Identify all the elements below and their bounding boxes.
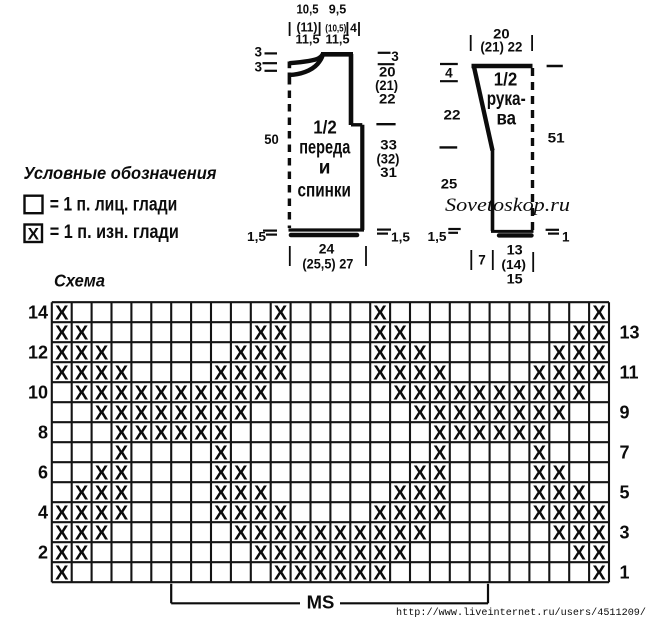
svg-text:X: X — [373, 543, 387, 565]
svg-text:11: 11 — [620, 363, 639, 383]
svg-text:X: X — [234, 363, 248, 385]
svg-text:MS: MS — [307, 592, 335, 613]
svg-text:X: X — [513, 423, 527, 445]
svg-text:X: X — [75, 543, 89, 565]
svg-text:X: X — [254, 503, 268, 525]
svg-text:12: 12 — [28, 343, 48, 363]
svg-text:X: X — [553, 523, 567, 545]
svg-text:(14): (14) — [501, 257, 526, 272]
svg-text:X: X — [393, 343, 407, 365]
svg-text:X: X — [413, 483, 427, 505]
svg-text:51: 51 — [548, 130, 565, 146]
svg-text:X: X — [393, 383, 407, 405]
svg-text:= 1 п. лиц. глади: = 1 п. лиц. глади — [50, 195, 178, 216]
svg-text:X: X — [294, 523, 308, 545]
svg-text:X: X — [155, 403, 169, 425]
svg-text:X: X — [493, 403, 507, 425]
svg-text:1: 1 — [620, 563, 630, 583]
svg-text:3: 3 — [391, 49, 399, 64]
svg-text:2: 2 — [38, 543, 48, 563]
svg-text:10: 10 — [28, 383, 48, 403]
svg-text:4: 4 — [38, 503, 48, 523]
svg-text:X: X — [493, 423, 507, 445]
svg-text:X: X — [572, 343, 586, 365]
svg-text:22: 22 — [444, 107, 461, 123]
svg-text:X: X — [254, 363, 268, 385]
svg-text:X: X — [135, 383, 149, 405]
svg-text:X: X — [194, 423, 208, 445]
svg-text:3: 3 — [254, 45, 262, 60]
svg-text:X: X — [334, 543, 348, 565]
svg-text:X: X — [473, 423, 487, 445]
svg-text:3: 3 — [254, 60, 262, 75]
svg-text:X: X — [294, 543, 308, 565]
svg-text:X: X — [55, 543, 69, 565]
svg-text:X: X — [155, 423, 169, 445]
svg-text:X: X — [572, 523, 586, 545]
svg-text:X: X — [473, 403, 487, 425]
svg-text:X: X — [393, 503, 407, 525]
svg-text:X: X — [314, 523, 328, 545]
svg-text:X: X — [75, 343, 89, 365]
svg-text:X: X — [274, 563, 288, 585]
svg-text:X: X — [553, 343, 567, 365]
svg-text:X: X — [433, 423, 447, 445]
svg-text:X: X — [254, 543, 268, 565]
svg-text:X: X — [533, 483, 547, 505]
svg-text:9,5: 9,5 — [329, 3, 347, 17]
svg-text:X: X — [55, 503, 69, 525]
svg-text:X: X — [214, 483, 228, 505]
svg-text:X: X — [453, 383, 467, 405]
svg-text:X: X — [274, 543, 288, 565]
svg-text:X: X — [214, 443, 228, 465]
svg-text:X: X — [413, 363, 427, 385]
svg-text:= 1 п. изн. глади: = 1 п. изн. глади — [50, 222, 179, 243]
svg-text:X: X — [373, 523, 387, 545]
svg-text:X: X — [572, 363, 586, 385]
svg-text:(25,5) 27: (25,5) 27 — [302, 257, 353, 272]
svg-text:X: X — [55, 363, 69, 385]
svg-text:X: X — [75, 323, 89, 345]
svg-text:X: X — [75, 523, 89, 545]
svg-text:X: X — [294, 563, 308, 585]
svg-text:X: X — [95, 403, 109, 425]
svg-text:X: X — [373, 363, 387, 385]
svg-text:X: X — [75, 503, 89, 525]
svg-text:24: 24 — [319, 242, 335, 257]
svg-text:X: X — [214, 383, 228, 405]
svg-text:X: X — [115, 383, 129, 405]
svg-text:рука-: рука- — [487, 89, 526, 110]
svg-text:1: 1 — [562, 230, 570, 245]
svg-text:X: X — [274, 323, 288, 345]
svg-text:X: X — [234, 463, 248, 485]
svg-text:X: X — [75, 483, 89, 505]
svg-text:14: 14 — [28, 303, 48, 323]
svg-text:X: X — [533, 423, 547, 445]
svg-text:X: X — [354, 563, 368, 585]
svg-text:спинки: спинки — [297, 180, 351, 201]
svg-text:переда: переда — [299, 138, 350, 159]
svg-text:X: X — [592, 303, 606, 325]
svg-text:X: X — [135, 403, 149, 425]
svg-text:X: X — [115, 363, 129, 385]
svg-text:X: X — [592, 563, 606, 585]
svg-text:X: X — [214, 403, 228, 425]
svg-text:13: 13 — [620, 323, 640, 343]
svg-text:X: X — [572, 323, 586, 345]
svg-text:X: X — [553, 403, 567, 425]
svg-text:X: X — [533, 443, 547, 465]
svg-text:X: X — [214, 363, 228, 385]
svg-text:X: X — [95, 363, 109, 385]
svg-text:X: X — [95, 463, 109, 485]
svg-text:X: X — [433, 443, 447, 465]
svg-text:6: 6 — [38, 463, 48, 483]
svg-text:X: X — [592, 363, 606, 385]
svg-text:X: X — [115, 443, 129, 465]
svg-text:4: 4 — [350, 21, 357, 35]
svg-text:X: X — [234, 523, 248, 545]
svg-text:X: X — [135, 423, 149, 445]
svg-text:X: X — [533, 403, 547, 425]
svg-text:X: X — [254, 383, 268, 405]
svg-text:X: X — [254, 323, 268, 345]
svg-text:X: X — [28, 225, 40, 244]
svg-text:3: 3 — [620, 523, 630, 543]
svg-text:X: X — [433, 503, 447, 525]
svg-text:X: X — [55, 323, 69, 345]
svg-text:X: X — [453, 423, 467, 445]
svg-text:11,5: 11,5 — [326, 33, 350, 47]
svg-text:25: 25 — [441, 176, 458, 192]
svg-text:X: X — [155, 383, 169, 405]
svg-text:X: X — [373, 503, 387, 525]
svg-text:X: X — [115, 403, 129, 425]
svg-text:X: X — [433, 383, 447, 405]
svg-text:X: X — [234, 343, 248, 365]
svg-text:X: X — [274, 343, 288, 365]
svg-text:X: X — [95, 343, 109, 365]
svg-text:X: X — [274, 503, 288, 525]
svg-text:22: 22 — [379, 91, 396, 107]
svg-text:X: X — [533, 503, 547, 525]
svg-text:X: X — [174, 383, 188, 405]
svg-text:X: X — [572, 543, 586, 565]
svg-text:X: X — [334, 523, 348, 545]
svg-text:1/2: 1/2 — [313, 118, 337, 138]
svg-text:X: X — [493, 383, 507, 405]
svg-text:X: X — [254, 343, 268, 365]
svg-text:X: X — [194, 383, 208, 405]
svg-text:X: X — [592, 543, 606, 565]
svg-text:X: X — [234, 503, 248, 525]
svg-text:7: 7 — [478, 253, 486, 268]
svg-text:X: X — [214, 463, 228, 485]
svg-text:X: X — [433, 463, 447, 485]
svg-text:X: X — [314, 563, 328, 585]
svg-text:9: 9 — [620, 403, 630, 423]
svg-text:X: X — [55, 563, 69, 585]
svg-text:X: X — [354, 543, 368, 565]
svg-text:X: X — [413, 503, 427, 525]
svg-text:http://www.liveinternet.ru/use: http://www.liveinternet.ru/users/4511209… — [396, 607, 646, 619]
svg-text:X: X — [413, 523, 427, 545]
svg-text:X: X — [433, 363, 447, 385]
svg-text:X: X — [115, 423, 129, 445]
svg-text:X: X — [254, 483, 268, 505]
svg-text:50: 50 — [264, 132, 279, 147]
svg-text:X: X — [592, 523, 606, 545]
svg-text:X: X — [55, 343, 69, 365]
svg-text:X: X — [95, 503, 109, 525]
svg-text:1,5: 1,5 — [428, 229, 447, 244]
svg-text:X: X — [393, 363, 407, 385]
svg-text:X: X — [373, 343, 387, 365]
svg-text:X: X — [393, 323, 407, 345]
svg-text:X: X — [115, 463, 129, 485]
svg-text:X: X — [334, 563, 348, 585]
svg-text:X: X — [592, 503, 606, 525]
svg-text:X: X — [572, 503, 586, 525]
svg-text:X: X — [513, 383, 527, 405]
svg-text:Схема: Схема — [54, 271, 105, 291]
svg-text:X: X — [194, 403, 208, 425]
svg-text:X: X — [373, 323, 387, 345]
svg-text:X: X — [115, 503, 129, 525]
svg-text:X: X — [533, 363, 547, 385]
svg-text:X: X — [95, 383, 109, 405]
svg-text:5: 5 — [620, 483, 630, 503]
svg-text:X: X — [95, 523, 109, 545]
svg-text:X: X — [413, 403, 427, 425]
svg-text:X: X — [55, 303, 69, 325]
svg-text:X: X — [174, 403, 188, 425]
svg-text:7: 7 — [620, 443, 630, 463]
svg-text:X: X — [234, 383, 248, 405]
svg-text:X: X — [592, 323, 606, 345]
svg-text:X: X — [254, 523, 268, 545]
svg-text:Sovetoskop.ru: Sovetoskop.ru — [445, 195, 570, 216]
svg-text:1,5: 1,5 — [391, 230, 410, 245]
svg-text:X: X — [234, 483, 248, 505]
svg-text:X: X — [75, 383, 89, 405]
svg-text:X: X — [354, 523, 368, 545]
svg-text:X: X — [533, 383, 547, 405]
svg-text:4: 4 — [445, 66, 453, 81]
svg-text:1/2: 1/2 — [494, 70, 518, 90]
svg-text:X: X — [274, 363, 288, 385]
svg-text:X: X — [274, 523, 288, 545]
svg-text:X: X — [234, 403, 248, 425]
svg-text:X: X — [453, 403, 467, 425]
svg-text:X: X — [393, 483, 407, 505]
svg-text:X: X — [413, 463, 427, 485]
svg-text:Условные обозначения: Условные обозначения — [24, 163, 217, 183]
svg-text:и: и — [319, 158, 331, 179]
svg-text:X: X — [393, 523, 407, 545]
svg-text:X: X — [274, 303, 288, 325]
svg-text:X: X — [413, 343, 427, 365]
svg-text:31: 31 — [380, 164, 397, 180]
svg-text:33: 33 — [380, 137, 397, 153]
svg-text:X: X — [553, 363, 567, 385]
svg-text:X: X — [95, 483, 109, 505]
svg-text:X: X — [393, 543, 407, 565]
svg-text:X: X — [214, 503, 228, 525]
svg-text:X: X — [553, 463, 567, 485]
svg-text:X: X — [592, 343, 606, 365]
svg-text:X: X — [553, 383, 567, 405]
svg-text:X: X — [513, 403, 527, 425]
svg-text:X: X — [413, 383, 427, 405]
svg-text:X: X — [373, 563, 387, 585]
svg-text:10,5: 10,5 — [297, 3, 319, 17]
svg-text:(21) 22: (21) 22 — [480, 40, 522, 55]
svg-text:X: X — [572, 483, 586, 505]
svg-text:X: X — [115, 483, 129, 505]
svg-text:X: X — [572, 383, 586, 405]
svg-text:11,5: 11,5 — [296, 33, 320, 47]
svg-text:X: X — [433, 403, 447, 425]
svg-text:X: X — [75, 363, 89, 385]
svg-text:X: X — [373, 303, 387, 325]
svg-text:X: X — [214, 423, 228, 445]
svg-text:X: X — [473, 383, 487, 405]
svg-text:X: X — [533, 463, 547, 485]
svg-text:8: 8 — [38, 423, 48, 443]
svg-text:X: X — [55, 523, 69, 545]
svg-text:X: X — [553, 483, 567, 505]
svg-text:X: X — [174, 423, 188, 445]
svg-text:13: 13 — [507, 243, 524, 258]
svg-text:X: X — [433, 483, 447, 505]
svg-text:X: X — [314, 543, 328, 565]
svg-text:ва: ва — [496, 108, 516, 129]
svg-text:15: 15 — [507, 272, 524, 287]
svg-text:X: X — [553, 503, 567, 525]
